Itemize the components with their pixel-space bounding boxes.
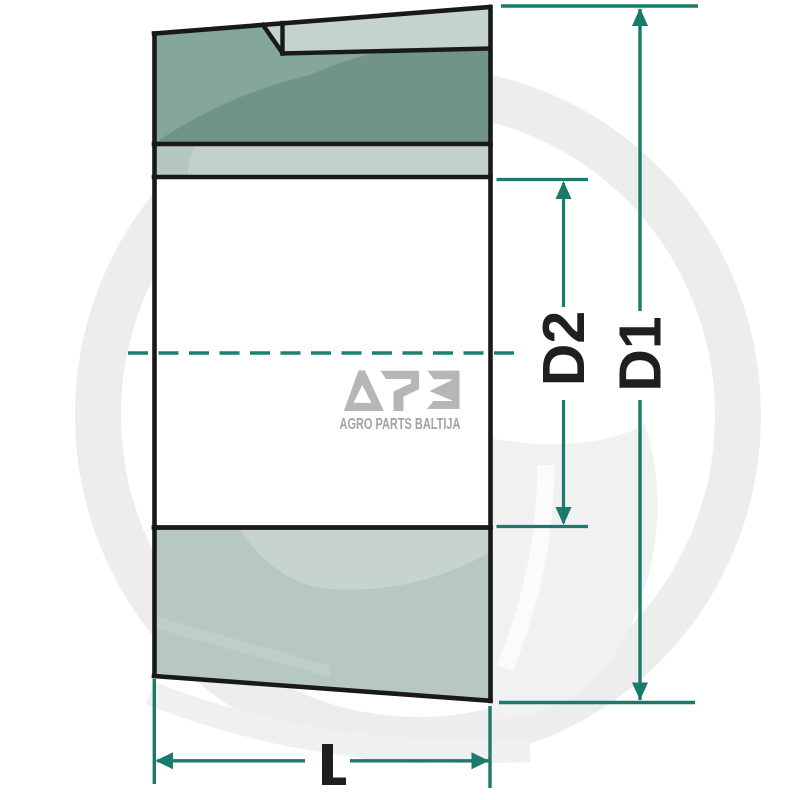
svg-text:D2: D2: [531, 311, 597, 386]
svg-text:AGRO PARTS BALTIJA: AGRO PARTS BALTIJA: [340, 415, 461, 432]
svg-text:D1: D1: [607, 316, 673, 391]
